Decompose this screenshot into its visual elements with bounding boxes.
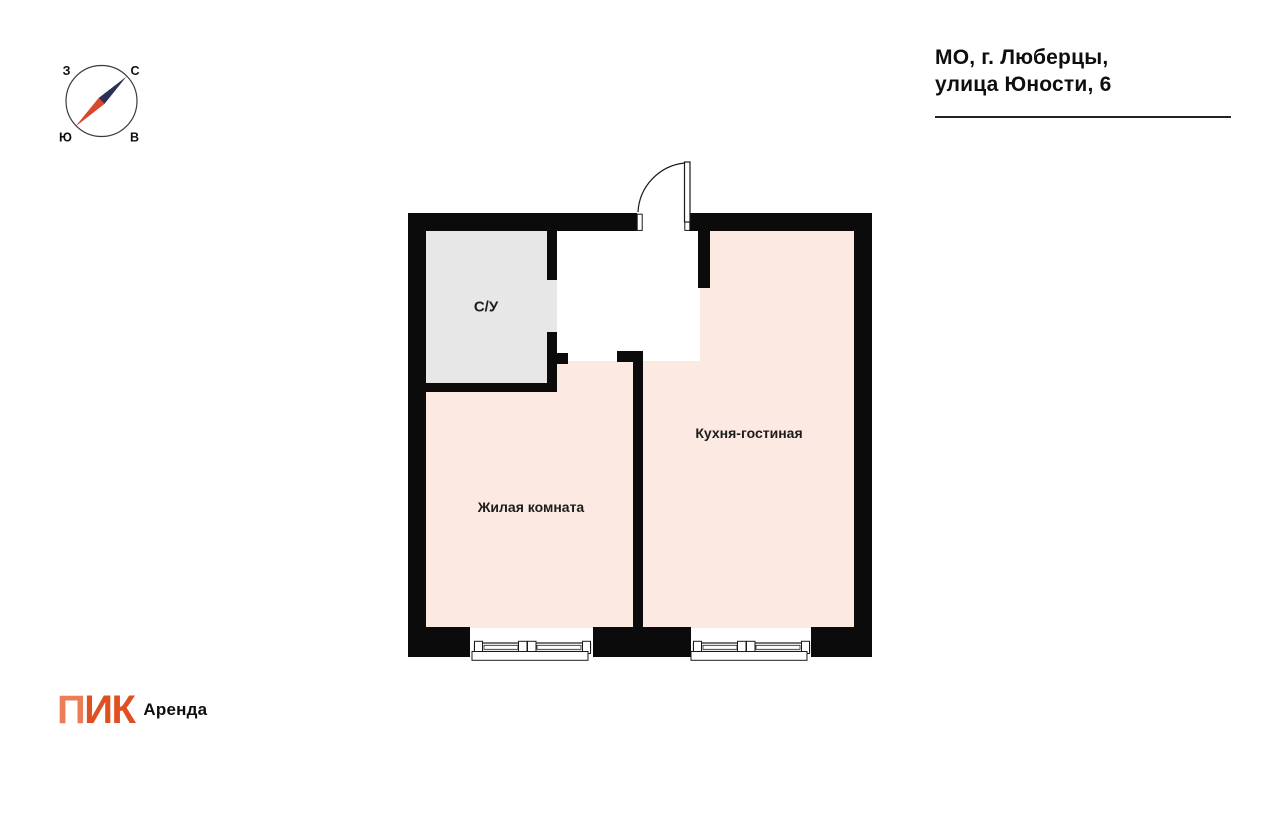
compass-label-west: З <box>63 64 71 78</box>
compass-label-south: Ю <box>59 131 72 145</box>
address-block: МО, г. Люберцы, улица Юности, 6 <box>935 44 1111 98</box>
address-line-2: улица Юности, 6 <box>935 71 1111 98</box>
window-right <box>691 641 810 660</box>
address-line-1: МО, г. Люберцы, <box>935 44 1111 71</box>
room-label-living-room: Жилая комната <box>478 499 584 515</box>
compass-label-east: В <box>130 131 139 145</box>
pik-logo-rest: ИК <box>84 688 134 732</box>
door-jamb-left <box>637 214 642 230</box>
window-left <box>472 641 591 660</box>
compass-needle-north <box>99 77 127 105</box>
door-leaf <box>685 162 691 222</box>
pik-logo-first-letter: П <box>57 688 84 732</box>
door-swing-arc <box>638 163 685 212</box>
compass: З С Ю В <box>55 55 150 150</box>
compass-needle-south <box>75 98 104 127</box>
address-divider <box>935 116 1231 118</box>
brand-logo: ПИК Аренда <box>57 691 207 729</box>
room-label-kitchen-living-room: Кухня-гостиная <box>695 425 802 441</box>
compass-label-north: С <box>130 64 139 78</box>
floorplan <box>400 150 880 665</box>
room-living-fill <box>426 361 638 628</box>
room-label-bathroom: С/У <box>474 299 498 316</box>
entrance-door <box>637 162 690 230</box>
brand-suffix-label: Аренда <box>143 700 207 720</box>
pik-logo: ПИК <box>57 691 134 729</box>
